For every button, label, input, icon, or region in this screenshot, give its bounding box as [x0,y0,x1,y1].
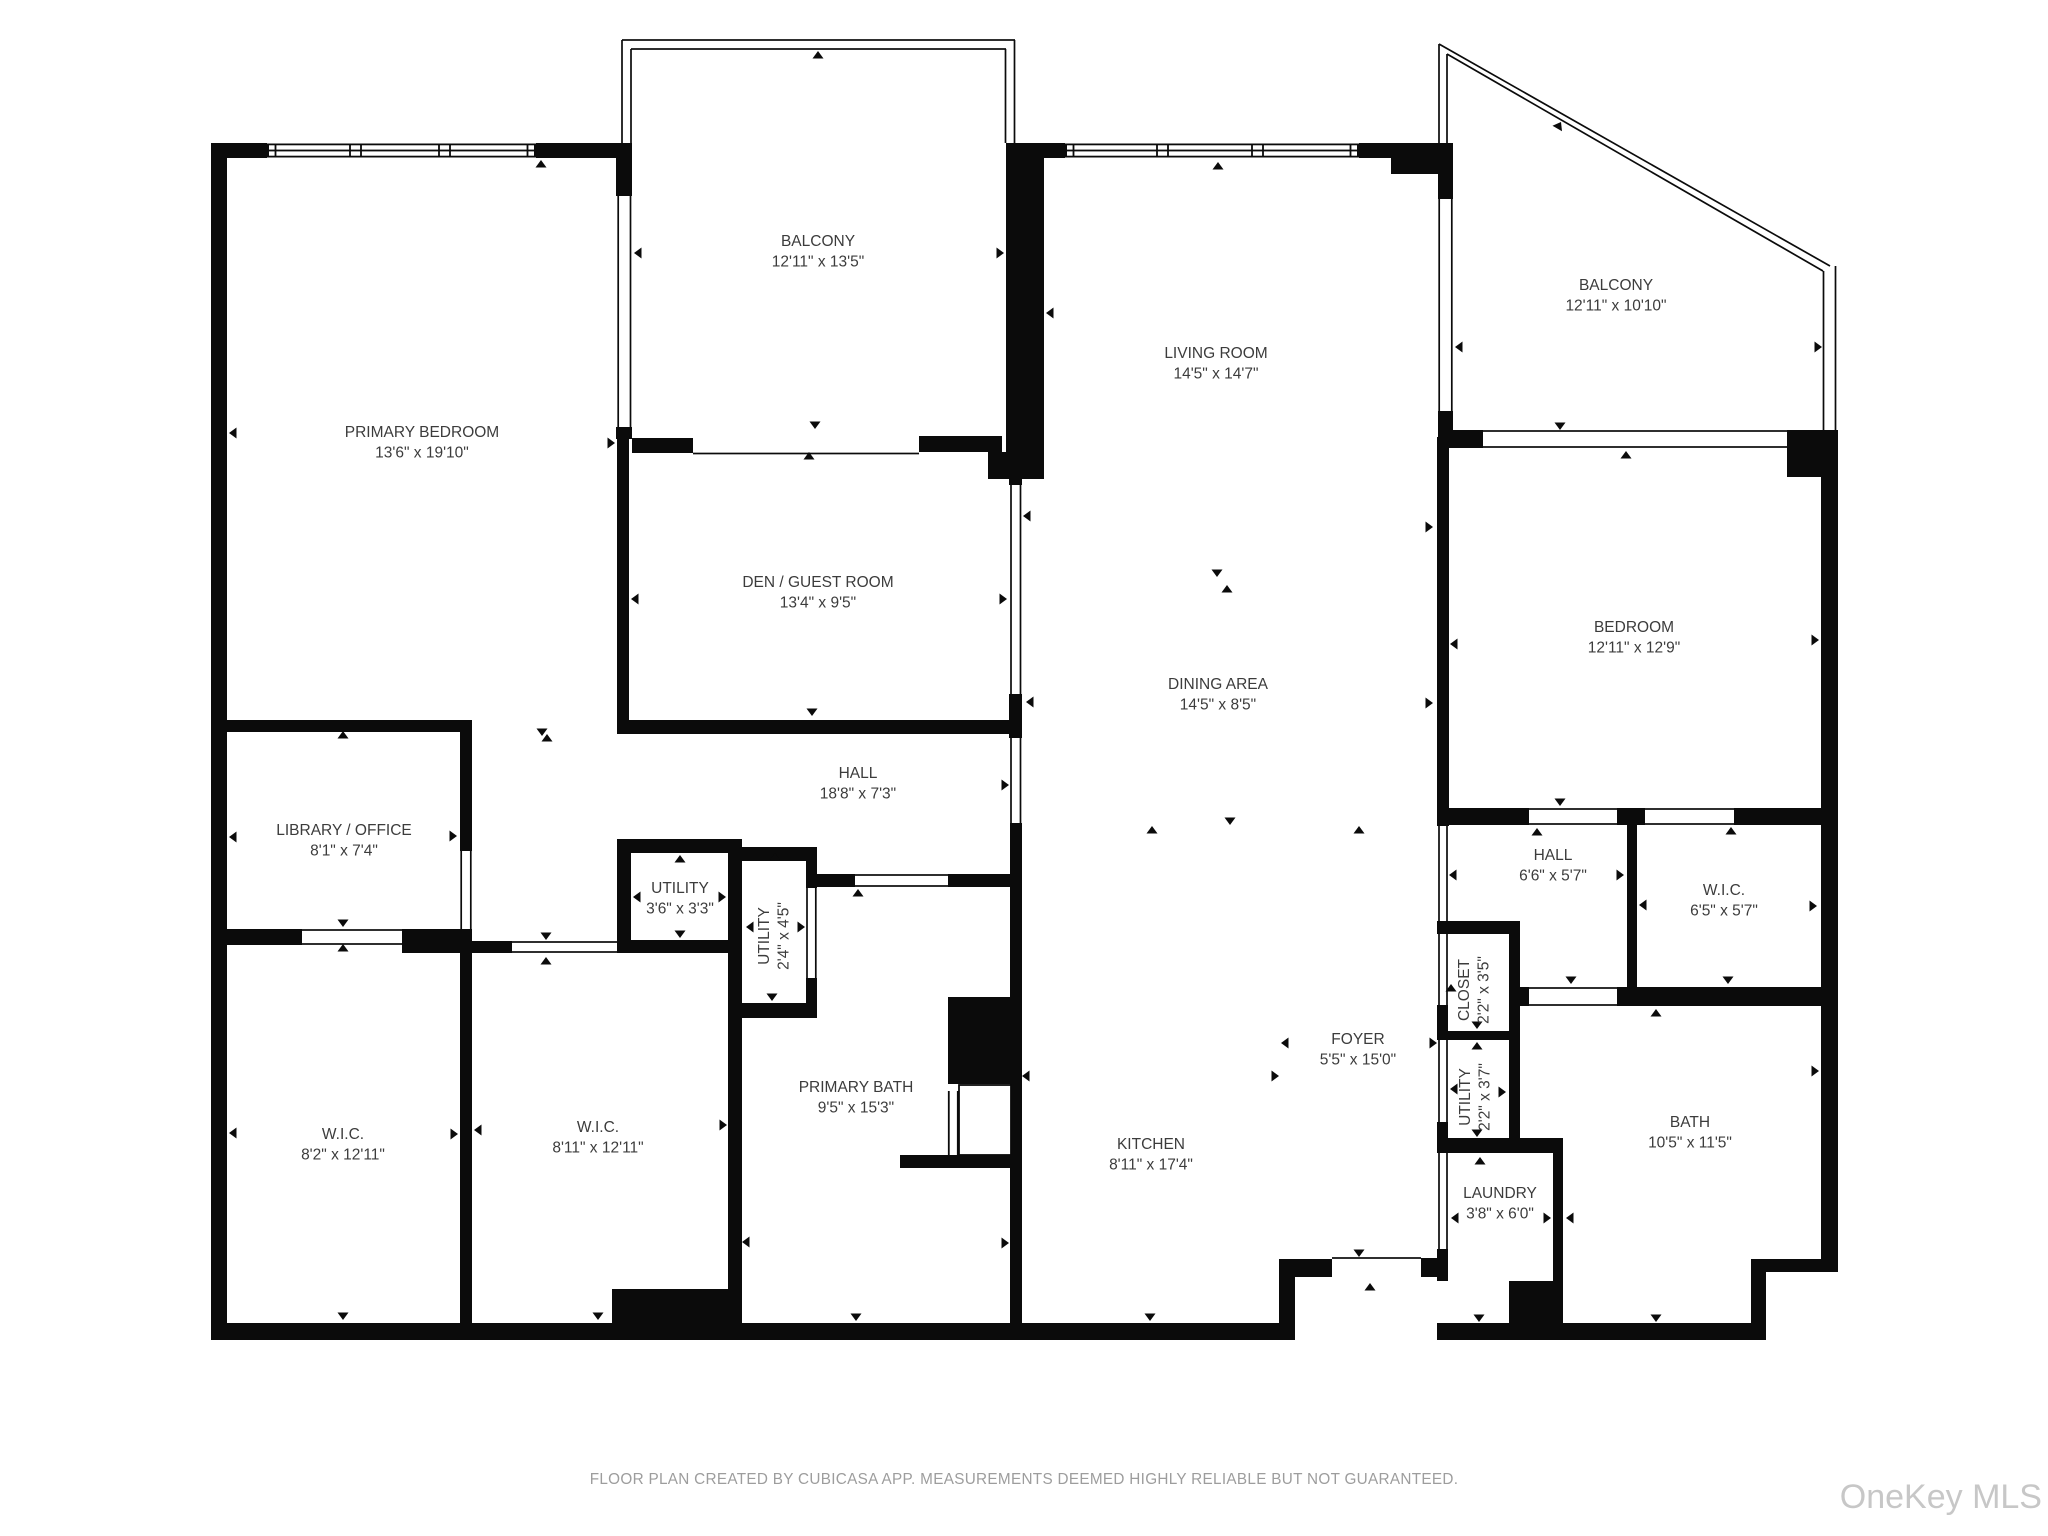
svg-text:2'4" x 4'5": 2'4" x 4'5" [776,902,793,970]
svg-text:8'11" x 17'4": 8'11" x 17'4" [1109,1157,1193,1174]
svg-text:HALL: HALL [839,765,878,782]
svg-text:BALCONY: BALCONY [1579,277,1653,294]
svg-text:12'11" x 12'9": 12'11" x 12'9" [1588,640,1680,657]
svg-text:PRIMARY BATH: PRIMARY BATH [799,1079,914,1096]
svg-text:3'6" x 3'3": 3'6" x 3'3" [646,901,714,918]
svg-text:UTILITY: UTILITY [1457,1068,1474,1126]
svg-text:LAUNDRY: LAUNDRY [1463,1185,1537,1202]
svg-text:CLOSET: CLOSET [1456,958,1473,1021]
svg-text:6'5" x 5'7": 6'5" x 5'7" [1690,903,1758,920]
svg-text:14'5" x 14'7": 14'5" x 14'7" [1173,366,1258,383]
svg-text:18'8" x 7'3": 18'8" x 7'3" [820,786,896,803]
svg-text:DINING AREA: DINING AREA [1168,676,1269,693]
svg-text:8'11" x 12'11": 8'11" x 12'11" [552,1140,643,1157]
svg-text:BALCONY: BALCONY [781,233,855,250]
svg-text:10'5" x 11'5": 10'5" x 11'5" [1648,1135,1732,1152]
svg-text:9'5" x 15'3": 9'5" x 15'3" [818,1100,894,1117]
svg-text:KITCHEN: KITCHEN [1117,1136,1185,1153]
svg-text:BEDROOM: BEDROOM [1594,619,1674,636]
svg-text:LIVING ROOM: LIVING ROOM [1164,345,1267,362]
svg-text:LIBRARY / OFFICE: LIBRARY / OFFICE [276,822,412,839]
svg-text:5'5" x 15'0": 5'5" x 15'0" [1320,1052,1396,1069]
svg-text:12'11" x 10'10": 12'11" x 10'10" [1565,298,1666,315]
svg-text:DEN / GUEST ROOM: DEN / GUEST ROOM [742,574,893,591]
svg-text:UTILITY: UTILITY [756,907,773,965]
svg-text:UTILITY: UTILITY [651,880,709,897]
svg-text:BATH: BATH [1670,1114,1710,1131]
svg-text:2'2" x 3'5": 2'2" x 3'5" [1476,956,1493,1024]
svg-text:8'2" x 12'11": 8'2" x 12'11" [301,1147,385,1164]
svg-text:14'5" x 8'5": 14'5" x 8'5" [1180,697,1256,714]
svg-text:PRIMARY BEDROOM: PRIMARY BEDROOM [345,424,499,441]
svg-text:HALL: HALL [1534,847,1573,864]
svg-text:13'6" x 19'10": 13'6" x 19'10" [375,445,469,462]
svg-text:3'8" x 6'0": 3'8" x 6'0" [1466,1206,1534,1223]
svg-text:FOYER: FOYER [1331,1031,1384,1048]
svg-text:12'11" x 13'5": 12'11" x 13'5" [772,254,864,271]
svg-text:6'6" x 5'7": 6'6" x 5'7" [1519,868,1587,885]
svg-text:8'1" x 7'4": 8'1" x 7'4" [310,843,378,860]
svg-text:W.I.C.: W.I.C. [577,1119,619,1136]
svg-text:13'4" x 9'5": 13'4" x 9'5" [780,595,856,612]
svg-text:FLOOR PLAN CREATED BY CUBICASA: FLOOR PLAN CREATED BY CUBICASA APP. MEAS… [590,1471,1459,1488]
svg-text:2'2" x 3'7": 2'2" x 3'7" [1477,1063,1494,1131]
svg-text:W.I.C.: W.I.C. [322,1126,364,1143]
svg-text:W.I.C.: W.I.C. [1703,882,1745,899]
svg-text:OneKey MLS: OneKey MLS [1840,1478,2042,1516]
